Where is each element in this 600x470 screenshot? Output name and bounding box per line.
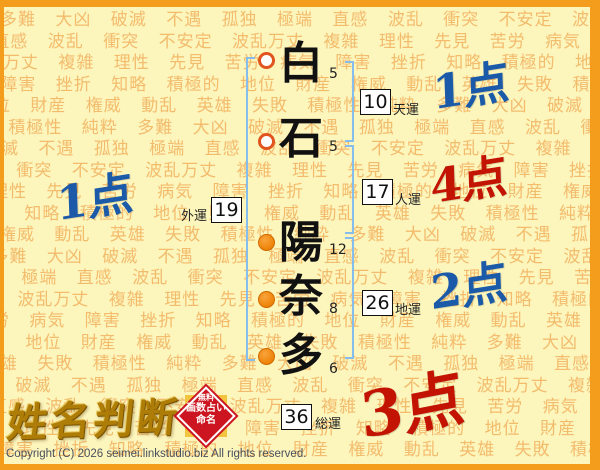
chiun-value-box: 26 — [362, 290, 393, 316]
name-char-5: 多 — [276, 334, 326, 378]
souun-value-box: 36 — [281, 404, 312, 430]
jinun-score: 4点 — [430, 152, 509, 211]
copyright-text: Copyright (C) 2026 seimei.linkstudio.biz… — [6, 448, 306, 460]
gaiun-score: 1点 — [56, 169, 135, 228]
name-char-1: 白 — [276, 42, 326, 86]
free-naming-seal[interactable]: 無料 画数占い 命名 — [176, 385, 236, 447]
tenun-value-box: 10 — [360, 89, 391, 115]
souun-label: 総運 — [315, 413, 341, 432]
jinun-label: 人運 — [395, 189, 421, 208]
given-marker-icon — [258, 348, 275, 365]
seimei-result-page: 多難 大凶 破滅 不遇 孤独 極端 直感 波乱 衝突 不安定 波乱万丈 複雑極端… — [0, 0, 600, 470]
surname-marker-icon — [258, 133, 275, 150]
stroke-count-1: 5 — [329, 66, 338, 82]
bracket-tenun — [345, 61, 354, 142]
stroke-count-5: 6 — [329, 361, 338, 377]
stroke-count-2: 5 — [329, 139, 338, 155]
given-marker-icon — [258, 291, 275, 308]
seal-text: 無料 画数占い 命名 — [176, 393, 236, 427]
tenun-score: 1点 — [432, 58, 511, 117]
seal-line-1: 無料 — [176, 393, 236, 403]
jinun-value-box: 17 — [362, 179, 393, 205]
gaiun-value-box: 19 — [211, 197, 242, 223]
bracket-jinun — [345, 145, 354, 234]
name-char-2: 石 — [276, 117, 326, 161]
stroke-count-4: 8 — [329, 301, 338, 317]
stroke-count-3: 12 — [329, 242, 347, 258]
chiun-score: 2点 — [430, 258, 509, 317]
bracket-gaiun-total — [246, 57, 255, 361]
gaiun-label: 外運 — [181, 205, 207, 224]
site-logo[interactable]: 姓名判断 — [5, 385, 184, 449]
tenun-label: 天運 — [393, 99, 419, 118]
souun-score: 3点 — [358, 366, 467, 448]
chiun-label: 地運 — [395, 299, 421, 318]
seal-line-2: 画数占い — [176, 403, 236, 415]
seal-line-3: 命名 — [176, 415, 236, 427]
given-marker-icon — [258, 234, 275, 251]
name-char-4: 奈 — [276, 275, 326, 319]
name-char-3: 陽 — [276, 221, 326, 265]
surname-marker-icon — [258, 52, 275, 69]
